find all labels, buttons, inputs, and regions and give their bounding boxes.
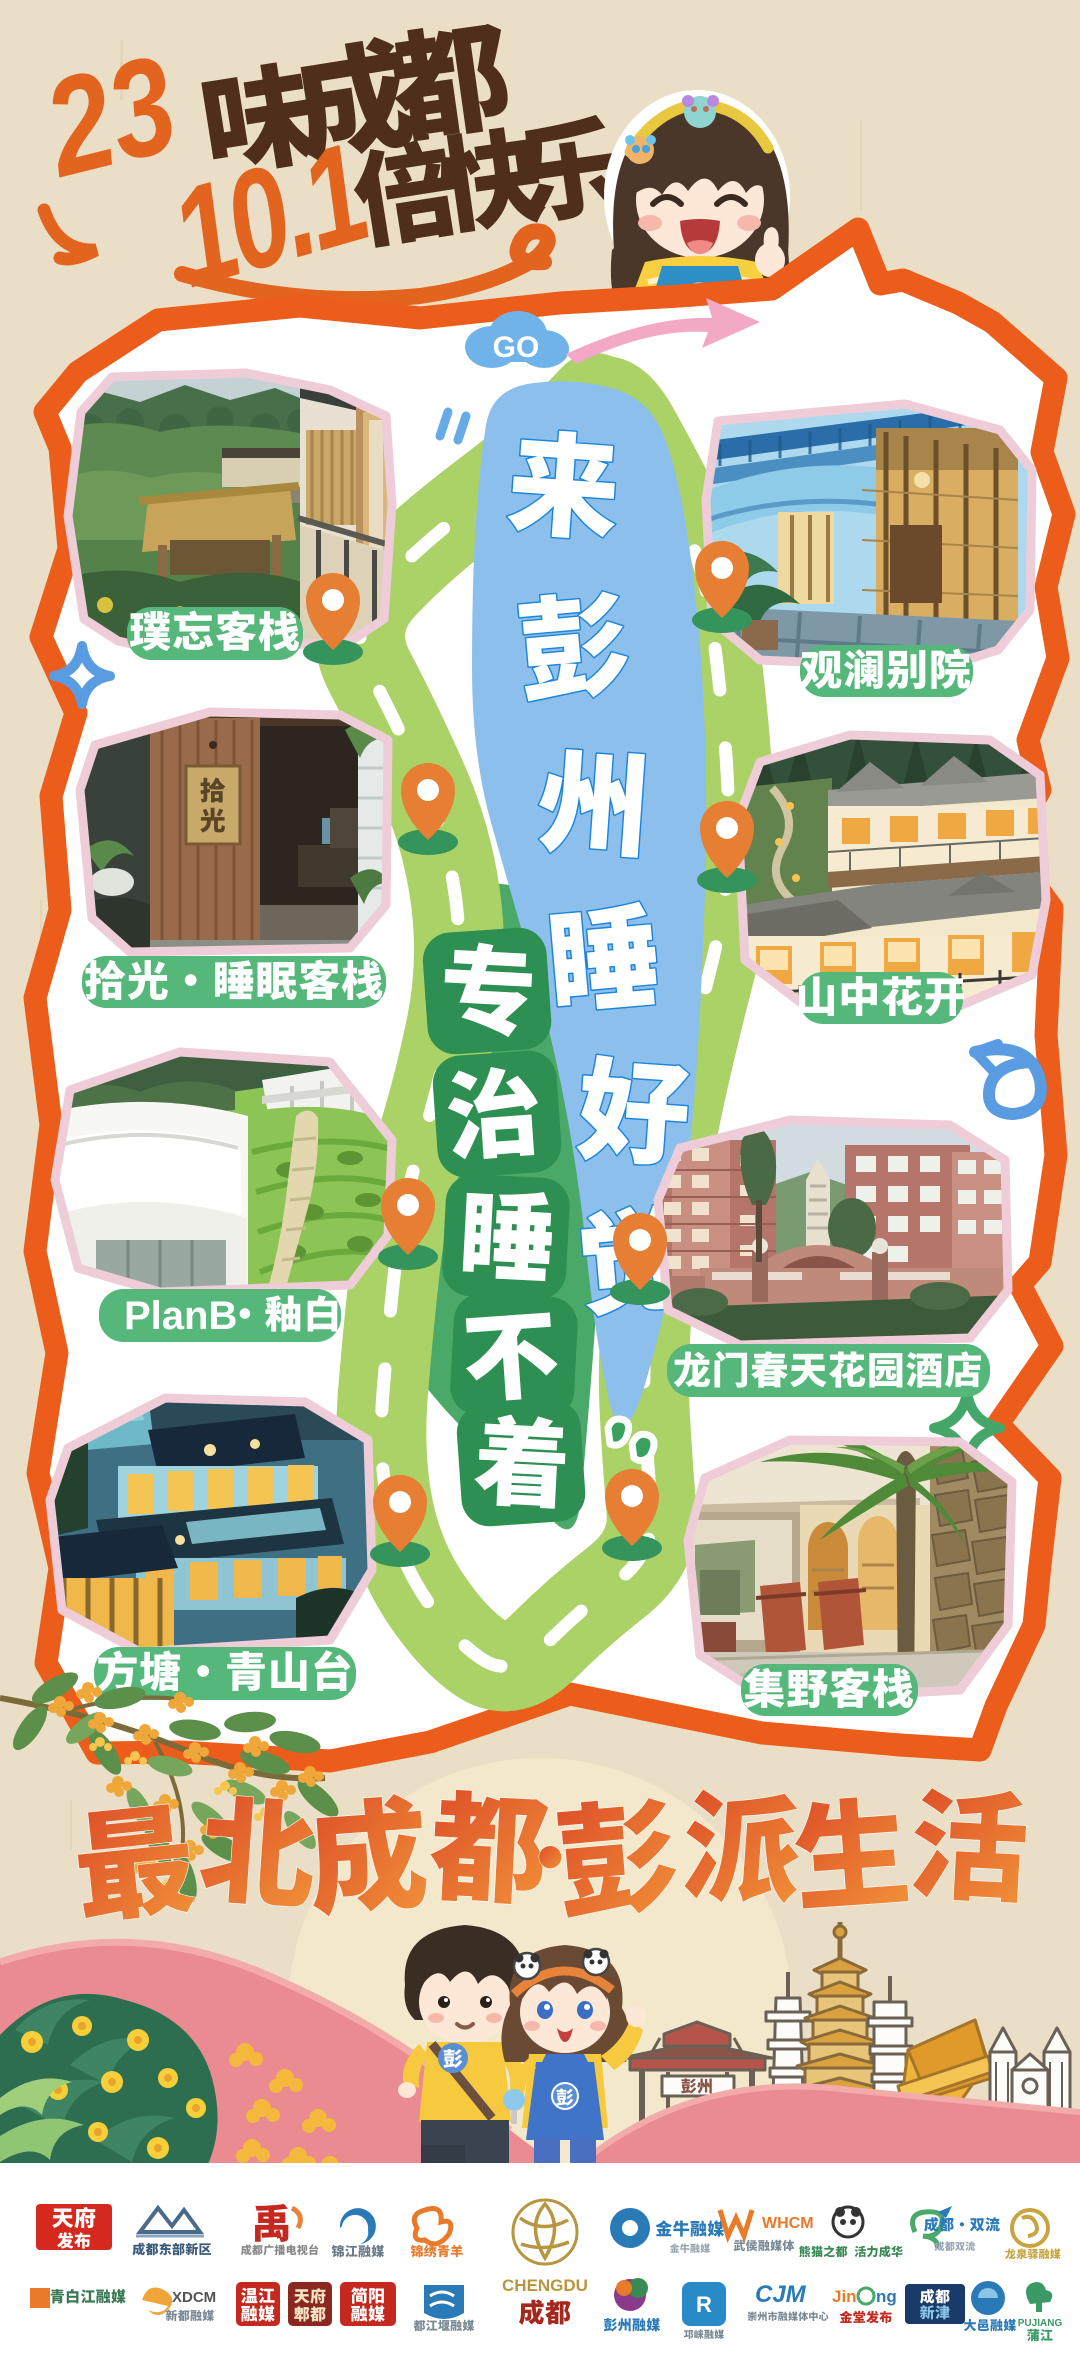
svg-text:ng: ng — [876, 2287, 897, 2306]
svg-text:CHENGDU: CHENGDU — [502, 2276, 588, 2295]
svg-text:CJM: CJM — [755, 2281, 807, 2308]
svg-text:PUJIANG: PUJIANG — [1018, 2318, 1063, 2329]
svg-text:Jin: Jin — [832, 2287, 857, 2306]
svg-text:GO: GO — [493, 331, 540, 364]
svg-text:PlanB: PlanB — [124, 1294, 237, 1338]
svg-text:WHCM: WHCM — [762, 2215, 814, 2232]
svg-text:R: R — [696, 2292, 712, 2317]
svg-text:XDCM: XDCM — [172, 2289, 216, 2306]
